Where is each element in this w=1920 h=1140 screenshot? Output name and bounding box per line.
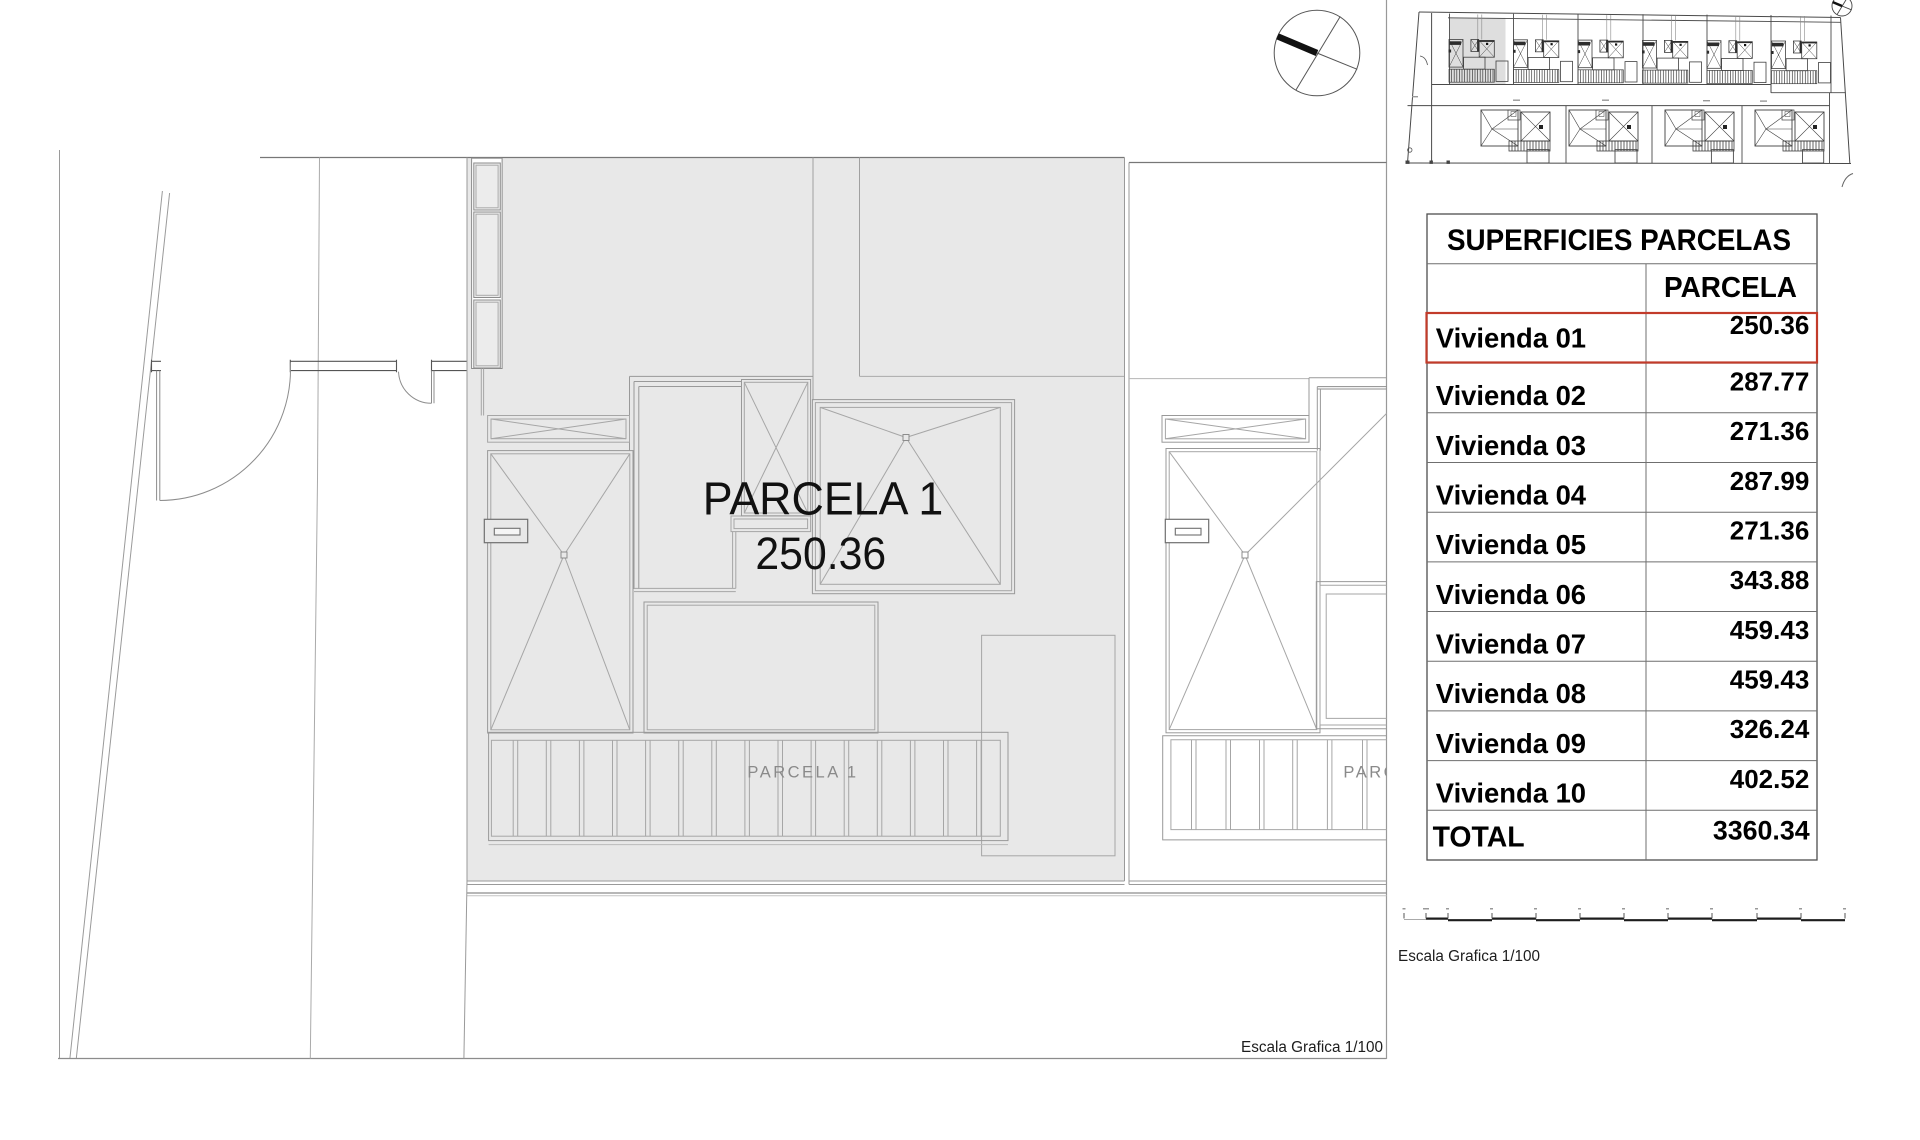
svg-text:Vivienda 01: Vivienda 01 — [1436, 322, 1586, 353]
svg-text:Escala Grafica 1/100: Escala Grafica 1/100 — [1241, 1039, 1383, 1056]
svg-text:402.52: 402.52 — [1730, 764, 1810, 794]
svg-text:SUPERFICIES PARCELAS: SUPERFICIES PARCELAS — [1447, 224, 1791, 257]
svg-text:PARCELA 1: PARCELA 1 — [703, 473, 944, 525]
svg-text:250.36: 250.36 — [755, 528, 886, 579]
svg-text:Vivienda 02: Vivienda 02 — [1436, 380, 1586, 411]
svg-text:3360.34: 3360.34 — [1713, 816, 1810, 846]
svg-text:250.36: 250.36 — [1730, 310, 1810, 340]
svg-text:Vivienda 09: Vivienda 09 — [1436, 728, 1586, 759]
svg-text:Vivienda 08: Vivienda 08 — [1436, 678, 1586, 709]
svg-text:Vivienda 05: Vivienda 05 — [1436, 529, 1586, 560]
svg-text:PARCELA 1: PARCELA 1 — [747, 764, 858, 782]
svg-text:Vivienda 03: Vivienda 03 — [1436, 430, 1586, 461]
svg-text:343.88: 343.88 — [1730, 565, 1810, 595]
svg-text:PARCELA: PARCELA — [1664, 272, 1797, 304]
svg-text:Vivienda 07: Vivienda 07 — [1436, 629, 1586, 660]
svg-text:287.99: 287.99 — [1730, 466, 1810, 496]
svg-text:Vivienda 06: Vivienda 06 — [1436, 579, 1586, 610]
svg-text:Escala Grafica 1/100: Escala Grafica 1/100 — [1398, 948, 1540, 965]
svg-text:Vivienda 10: Vivienda 10 — [1436, 778, 1586, 809]
svg-text:Vivienda 04: Vivienda 04 — [1436, 480, 1587, 511]
svg-text:326.24: 326.24 — [1730, 714, 1810, 744]
svg-text:459.43: 459.43 — [1730, 615, 1810, 645]
svg-text:271.36: 271.36 — [1730, 516, 1810, 546]
svg-text:271.36: 271.36 — [1730, 416, 1810, 446]
svg-text:459.43: 459.43 — [1730, 665, 1810, 695]
svg-text:287.77: 287.77 — [1730, 366, 1810, 396]
svg-text:TOTAL: TOTAL — [1433, 821, 1525, 853]
